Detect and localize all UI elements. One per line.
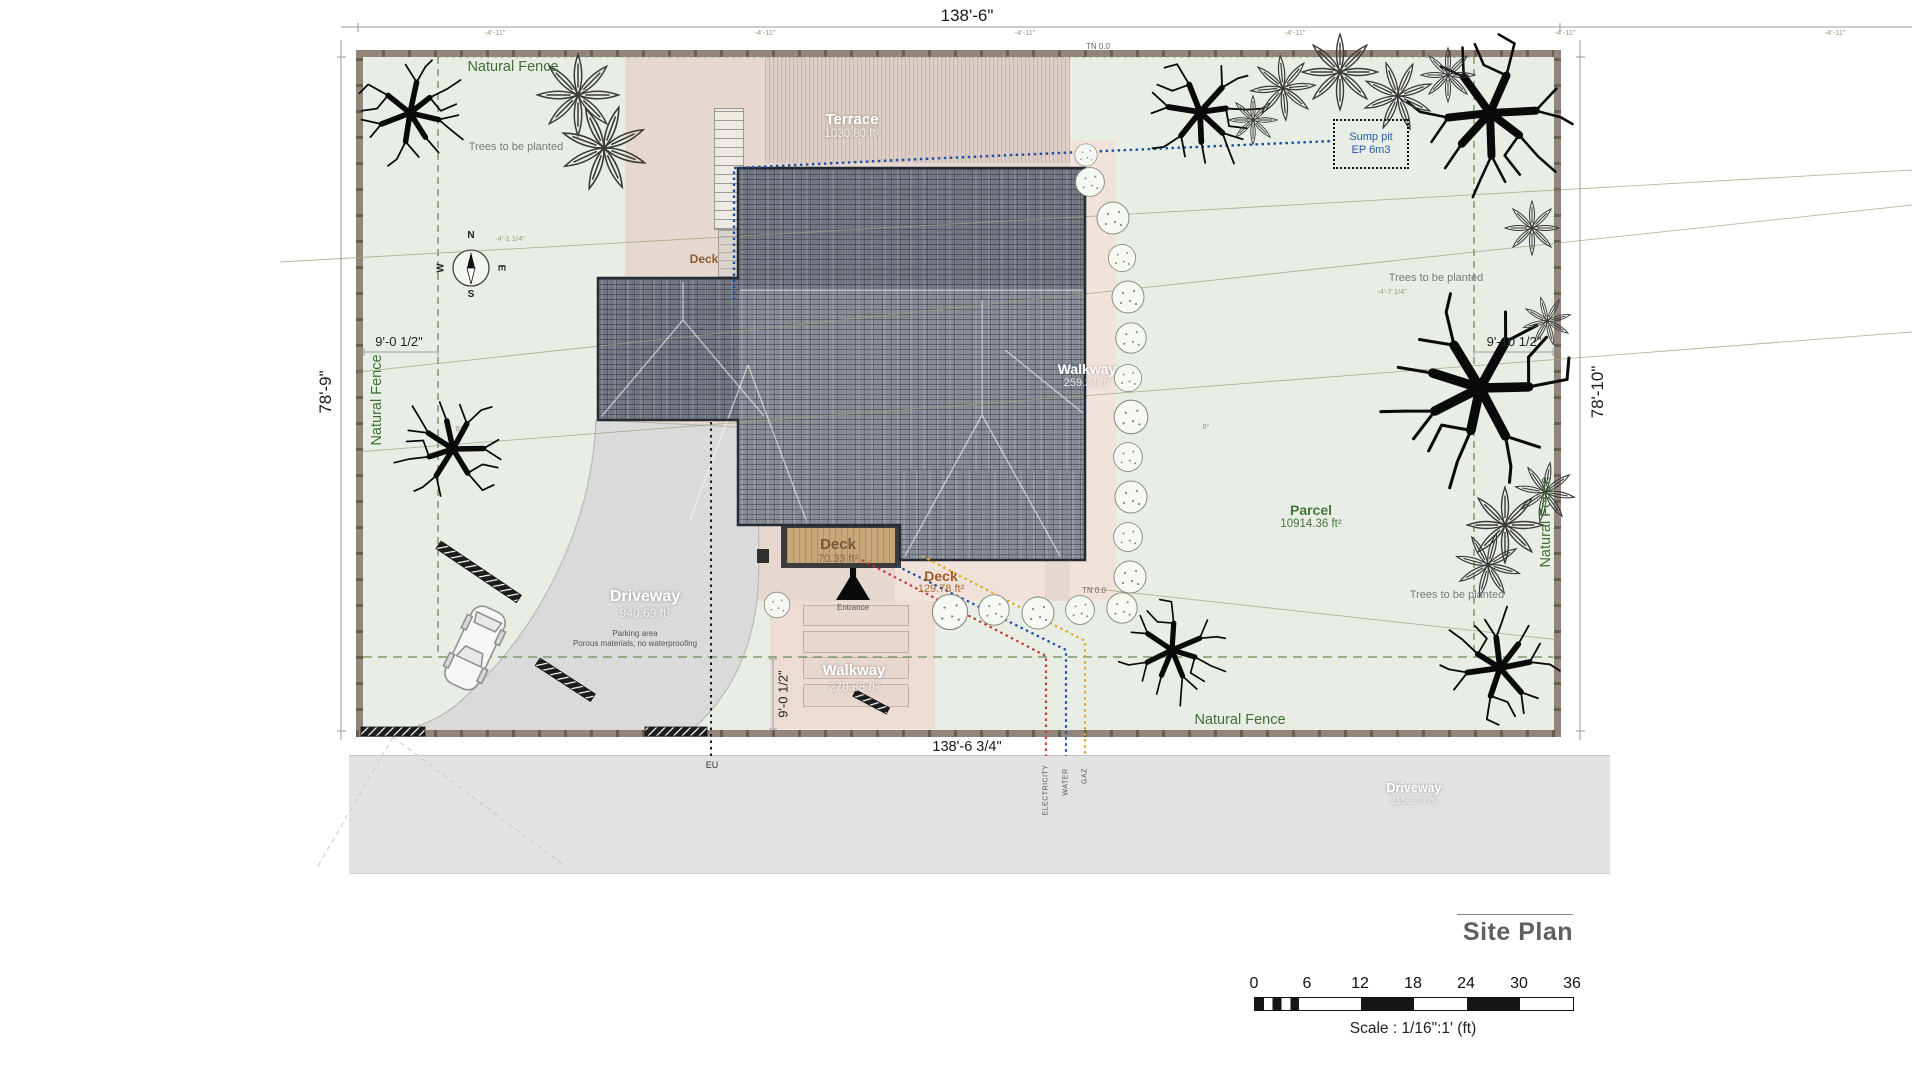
parcel-label: Parcel	[1290, 502, 1332, 518]
parking-note-line2: Porous materials, no waterproofing	[573, 639, 697, 648]
turning-guides	[318, 737, 565, 866]
walkway-east-area-label: 259.24 ft²	[1064, 377, 1110, 389]
eu-label: EU	[706, 760, 719, 770]
setback-left-dim: 9'-0 1/2"	[375, 334, 423, 349]
fence-tick-label: -4'-11"	[1824, 28, 1845, 37]
trees-note-right-bottom: Trees to be planted	[1410, 589, 1504, 601]
roof-outline	[598, 168, 1085, 560]
dimension-left: 78'-9"	[316, 370, 336, 413]
scale-tick-24: 24	[1457, 975, 1475, 993]
sump-pit-line2: EP 6m3	[1352, 144, 1391, 157]
sump-drain-line	[734, 141, 1333, 300]
walkway-east-label: Walkway	[1058, 361, 1117, 377]
fence-tick-label: -4'-11"	[1554, 28, 1575, 37]
deck-upper-label: Deck	[690, 252, 719, 266]
fence-tick-label: -4'-11"	[484, 28, 505, 37]
road-driveway-area-label: 2156.73 ft²	[1390, 796, 1438, 807]
road-driveway-label: Driveway	[1387, 781, 1442, 795]
compass-icon	[453, 250, 489, 286]
offset-right-label: -4'-7 1/4"	[1377, 287, 1407, 296]
scale-text: Scale : 1/16":1' (ft)	[1350, 1020, 1477, 1038]
tn-top-label: TN 0.0	[1086, 42, 1110, 51]
deck-main-area-label: 70.33 ft²	[818, 553, 858, 565]
trees-note-left: Trees to be planted	[469, 141, 563, 153]
dimension-bottom: 138'-6 3/4"	[932, 739, 1001, 755]
terrace-area-label: 1030.80 ft²	[825, 128, 880, 140]
offset-left-label: -4'-1 1/4"	[495, 234, 525, 243]
fence-tick-label: -4'-11"	[1014, 28, 1035, 37]
title-rule	[1457, 914, 1573, 915]
scale-tick-36: 36	[1563, 975, 1581, 993]
scale-tick-6: 6	[1303, 975, 1312, 993]
angle-right-label: 0°	[1203, 424, 1210, 431]
setback-right-dim: 9'-10 1/2"	[1487, 334, 1542, 349]
parcel-area-label: 10914.36 ft²	[1280, 518, 1341, 530]
natural-fence-right-label: Natural Fence	[1538, 476, 1554, 567]
dimension-right: 78'-10"	[1588, 366, 1608, 419]
page-title: Site Plan	[1453, 918, 1573, 947]
scale-tick-0: 0	[1250, 975, 1259, 993]
scale-bar-blocks	[1254, 997, 1574, 1011]
deck-south-label: Deck	[924, 568, 957, 584]
driveway-label: Driveway	[610, 588, 680, 606]
site-plan: Sump pit EP 6m3 138'-6" -4'-11" -4'-11" …	[0, 0, 1920, 1080]
dimension-top: 138'-6"	[941, 6, 994, 26]
compass-south: S	[468, 289, 475, 300]
fence-tick-label: -4'-11"	[1284, 28, 1305, 37]
scale-tick-12: 12	[1351, 975, 1369, 993]
water-label: WATER	[1063, 769, 1070, 796]
trees-note-right-top: Trees to be planted	[1389, 272, 1483, 284]
natural-fence-top-label: Natural Fence	[467, 59, 558, 75]
gas-label: GAZ	[1082, 768, 1089, 784]
fern-icons	[538, 34, 1587, 604]
sump-pit-callout: Sump pit EP 6m3	[1333, 119, 1409, 169]
walkway-south-area-label: 278.88 ft²	[829, 680, 880, 694]
deck-main-label: Deck	[820, 536, 856, 553]
fence-tick-label: -4'-11"	[754, 28, 775, 37]
deck-south-area-label: 129.78 ft²	[918, 583, 964, 595]
angle-left-label: 0°	[456, 426, 463, 433]
plan-overlay	[0, 0, 1920, 1080]
electricity-label: ELECTRICITY	[1043, 764, 1050, 815]
natural-fence-left-label: Natural Fence	[369, 354, 385, 445]
scale-tick-30: 30	[1510, 975, 1528, 993]
terrace-label: Terrace	[825, 111, 878, 128]
entrance-label: Entrance	[837, 603, 869, 612]
parking-note-line1: Parking area	[612, 629, 657, 638]
compass-east: E	[496, 265, 507, 272]
car-icon	[438, 601, 512, 695]
compass-west: W	[436, 263, 447, 272]
scale-tick-18: 18	[1404, 975, 1422, 993]
setback-bottom-dim: 9'-0 1/2"	[776, 670, 791, 718]
tn-bottom-label: TN 0.0	[1082, 586, 1106, 595]
sump-pit-line1: Sump pit	[1349, 131, 1392, 144]
walkway-south-label: Walkway	[823, 662, 886, 679]
compass-north: N	[467, 230, 474, 241]
natural-fence-bottom-label: Natural Fence	[1194, 712, 1285, 728]
driveway-area-label: 940.69 ft²	[620, 606, 671, 620]
